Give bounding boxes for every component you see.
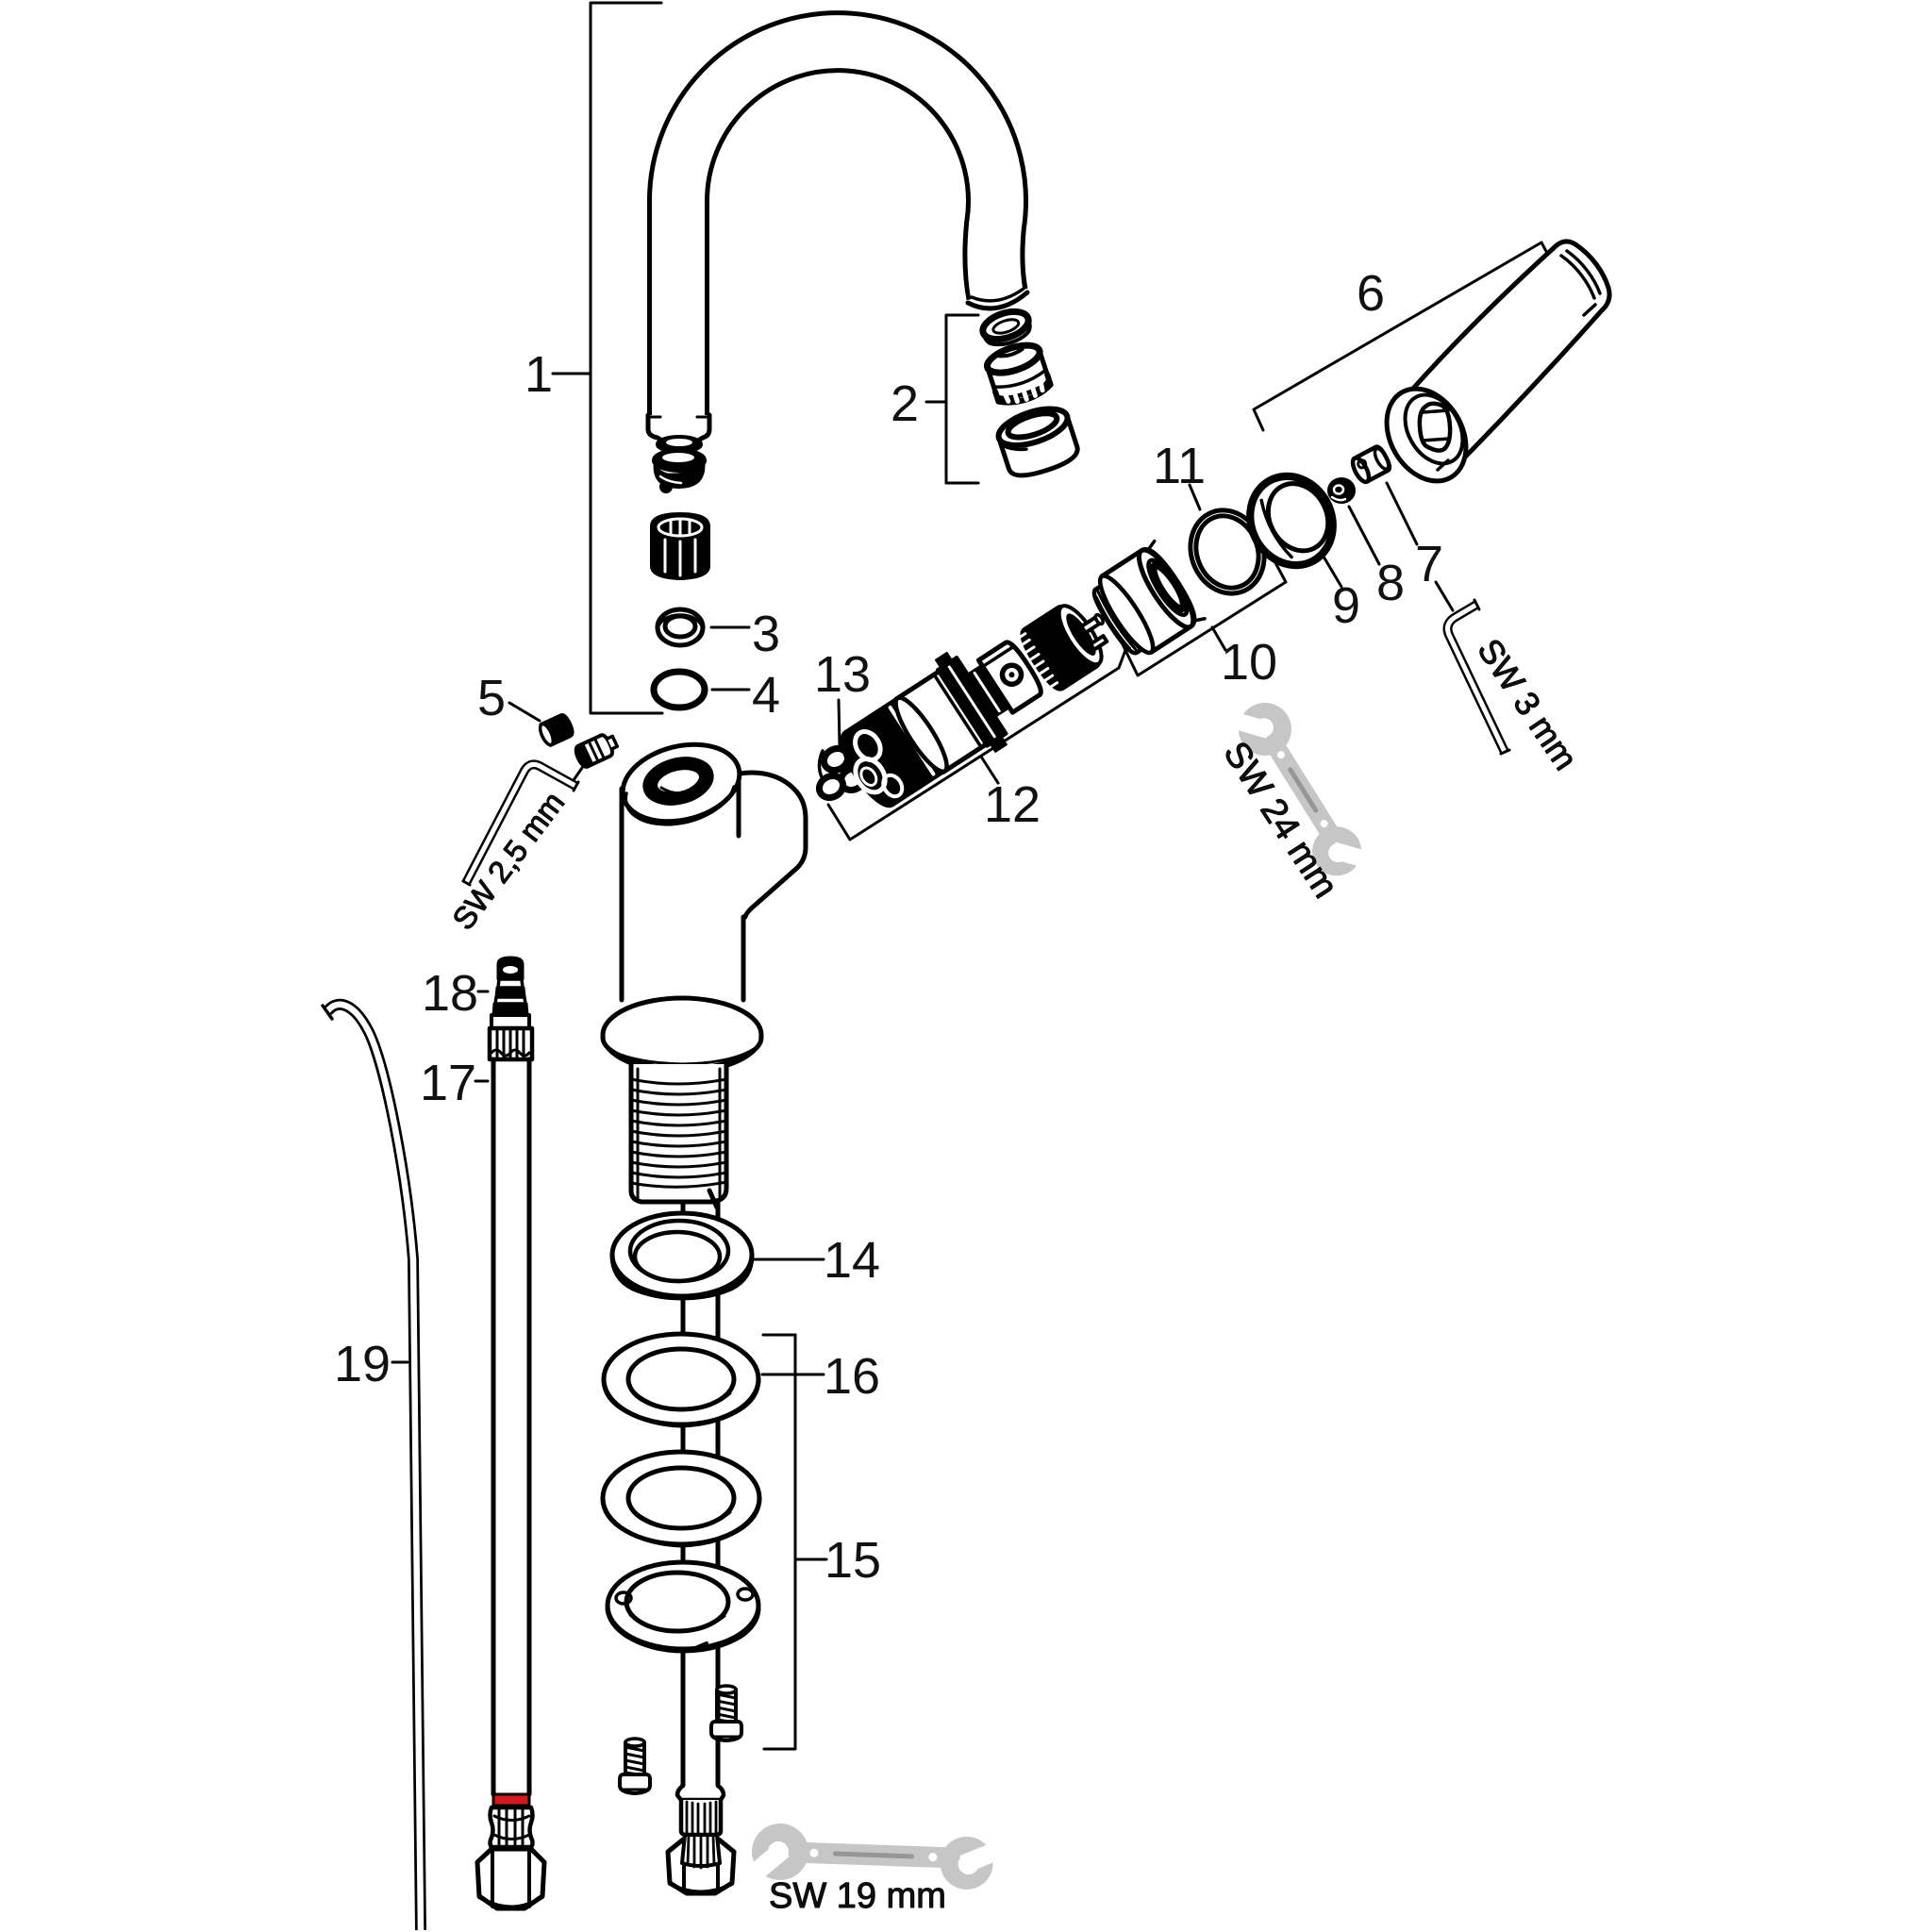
svg-text:9: 9: [1332, 577, 1360, 634]
svg-text:8: 8: [1376, 555, 1405, 611]
svg-text:18: 18: [422, 965, 478, 1022]
svg-text:4: 4: [752, 667, 780, 724]
svg-text:17: 17: [420, 1055, 476, 1111]
svg-text:6: 6: [1357, 265, 1385, 322]
svg-text:19: 19: [334, 1336, 391, 1392]
svg-text:11: 11: [1153, 438, 1206, 494]
svg-text:SW 19 mm: SW 19 mm: [769, 1876, 946, 1916]
svg-text:13: 13: [814, 646, 871, 703]
svg-text:1: 1: [525, 346, 553, 403]
svg-text:7: 7: [1415, 536, 1443, 592]
svg-text:15: 15: [824, 1532, 881, 1589]
svg-text:12: 12: [984, 776, 1041, 833]
svg-text:2: 2: [891, 375, 919, 432]
svg-text:10: 10: [1221, 634, 1277, 691]
svg-text:14: 14: [824, 1232, 880, 1289]
svg-text:5: 5: [477, 670, 506, 726]
svg-text:3: 3: [752, 606, 780, 662]
svg-text:16: 16: [824, 1348, 880, 1405]
